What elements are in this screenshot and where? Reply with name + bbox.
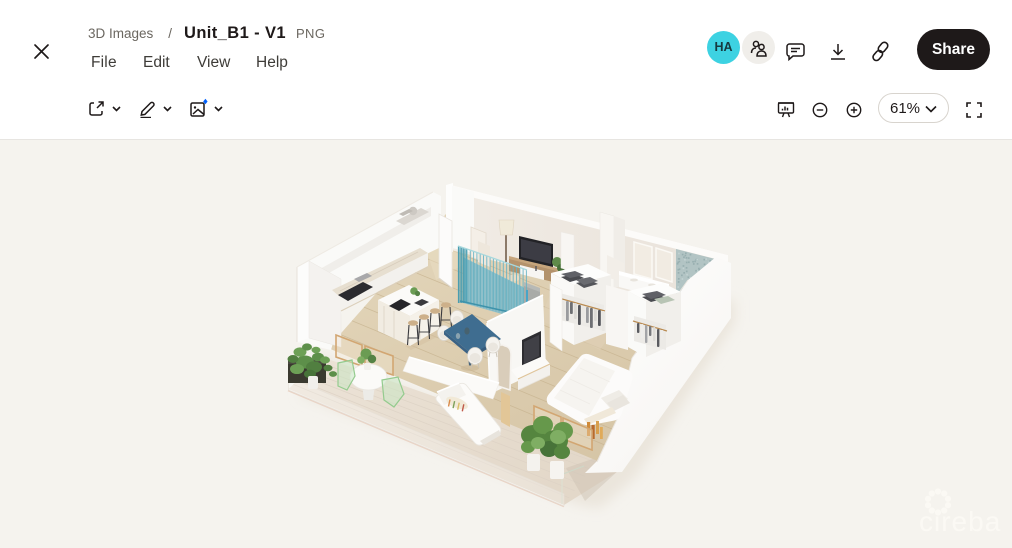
svg-text:cireba: cireba [919,506,1001,537]
